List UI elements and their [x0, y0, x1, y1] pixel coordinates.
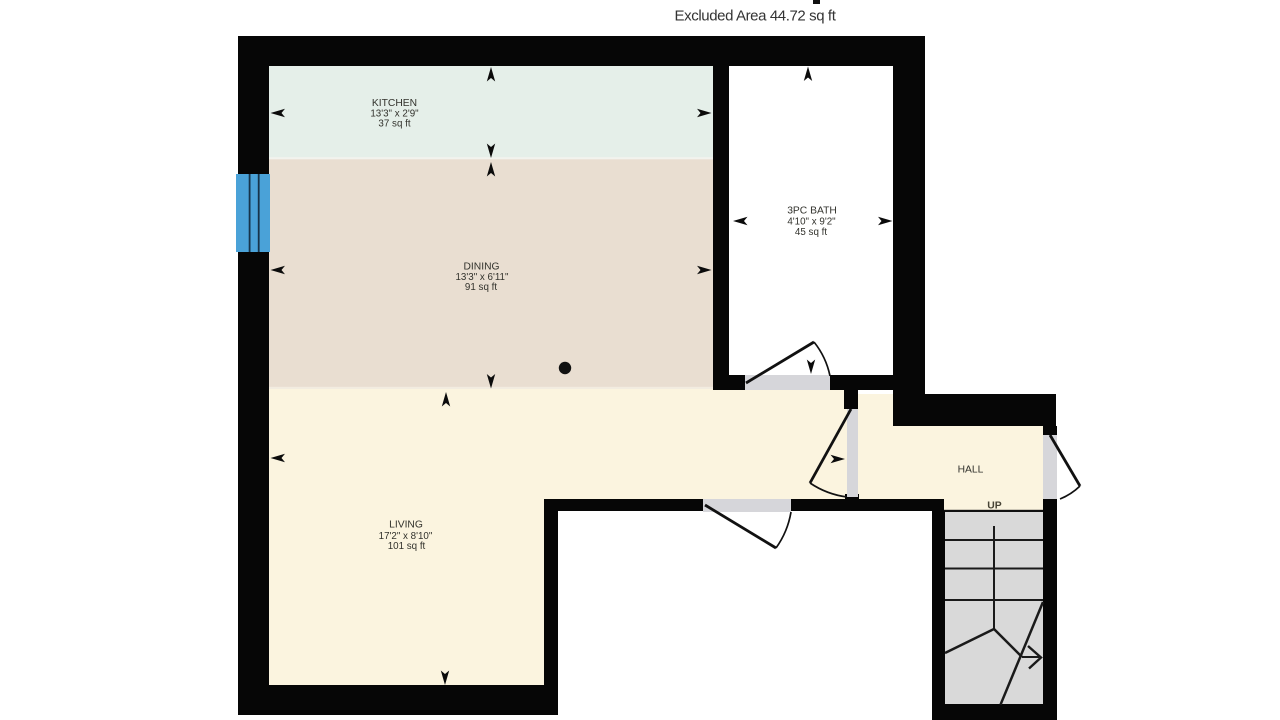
- svg-text:KITCHEN: KITCHEN: [372, 98, 417, 109]
- svg-text:4'10" x 9'2": 4'10" x 9'2": [787, 217, 836, 228]
- svg-text:101 sq ft: 101 sq ft: [388, 541, 426, 552]
- svg-text:91 sq ft: 91 sq ft: [465, 282, 497, 293]
- svg-text:3PC BATH: 3PC BATH: [787, 206, 837, 217]
- svg-text:DINING: DINING: [463, 262, 499, 273]
- svg-text:UP: UP: [987, 501, 1002, 512]
- svg-text:LIVING: LIVING: [389, 520, 423, 531]
- svg-text:45 sq ft: 45 sq ft: [795, 227, 827, 238]
- svg-text:HALL: HALL: [958, 465, 984, 476]
- svg-text:Excluded Area 44.72 sq ft: Excluded Area 44.72 sq ft: [675, 8, 837, 25]
- svg-text:37 sq ft: 37 sq ft: [378, 118, 410, 129]
